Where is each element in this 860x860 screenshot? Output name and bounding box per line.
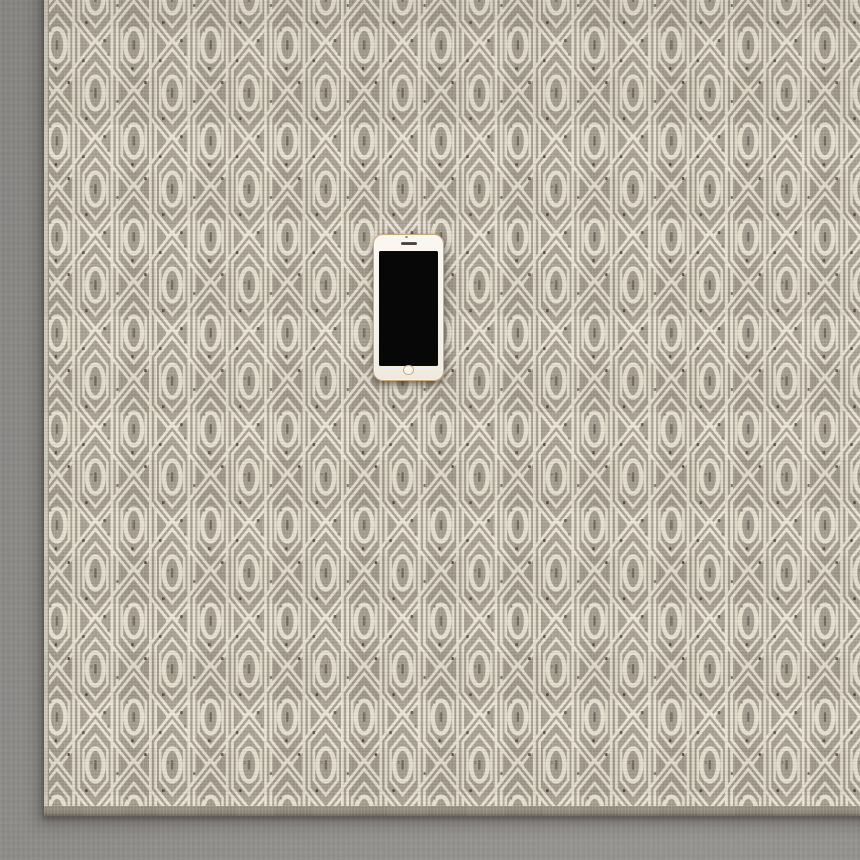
home-button[interactable] [403,365,414,376]
earpiece-speaker-icon [401,242,417,245]
phone-screen[interactable] [379,251,438,366]
rug-pattern [49,0,860,816]
front-camera-icon [394,242,398,246]
proximity-sensor-icon [405,236,408,238]
rug-binding-bottom [44,806,860,816]
area-rug [44,0,860,816]
rug-selvedge-left [44,0,49,810]
smartphone[interactable] [373,234,444,381]
